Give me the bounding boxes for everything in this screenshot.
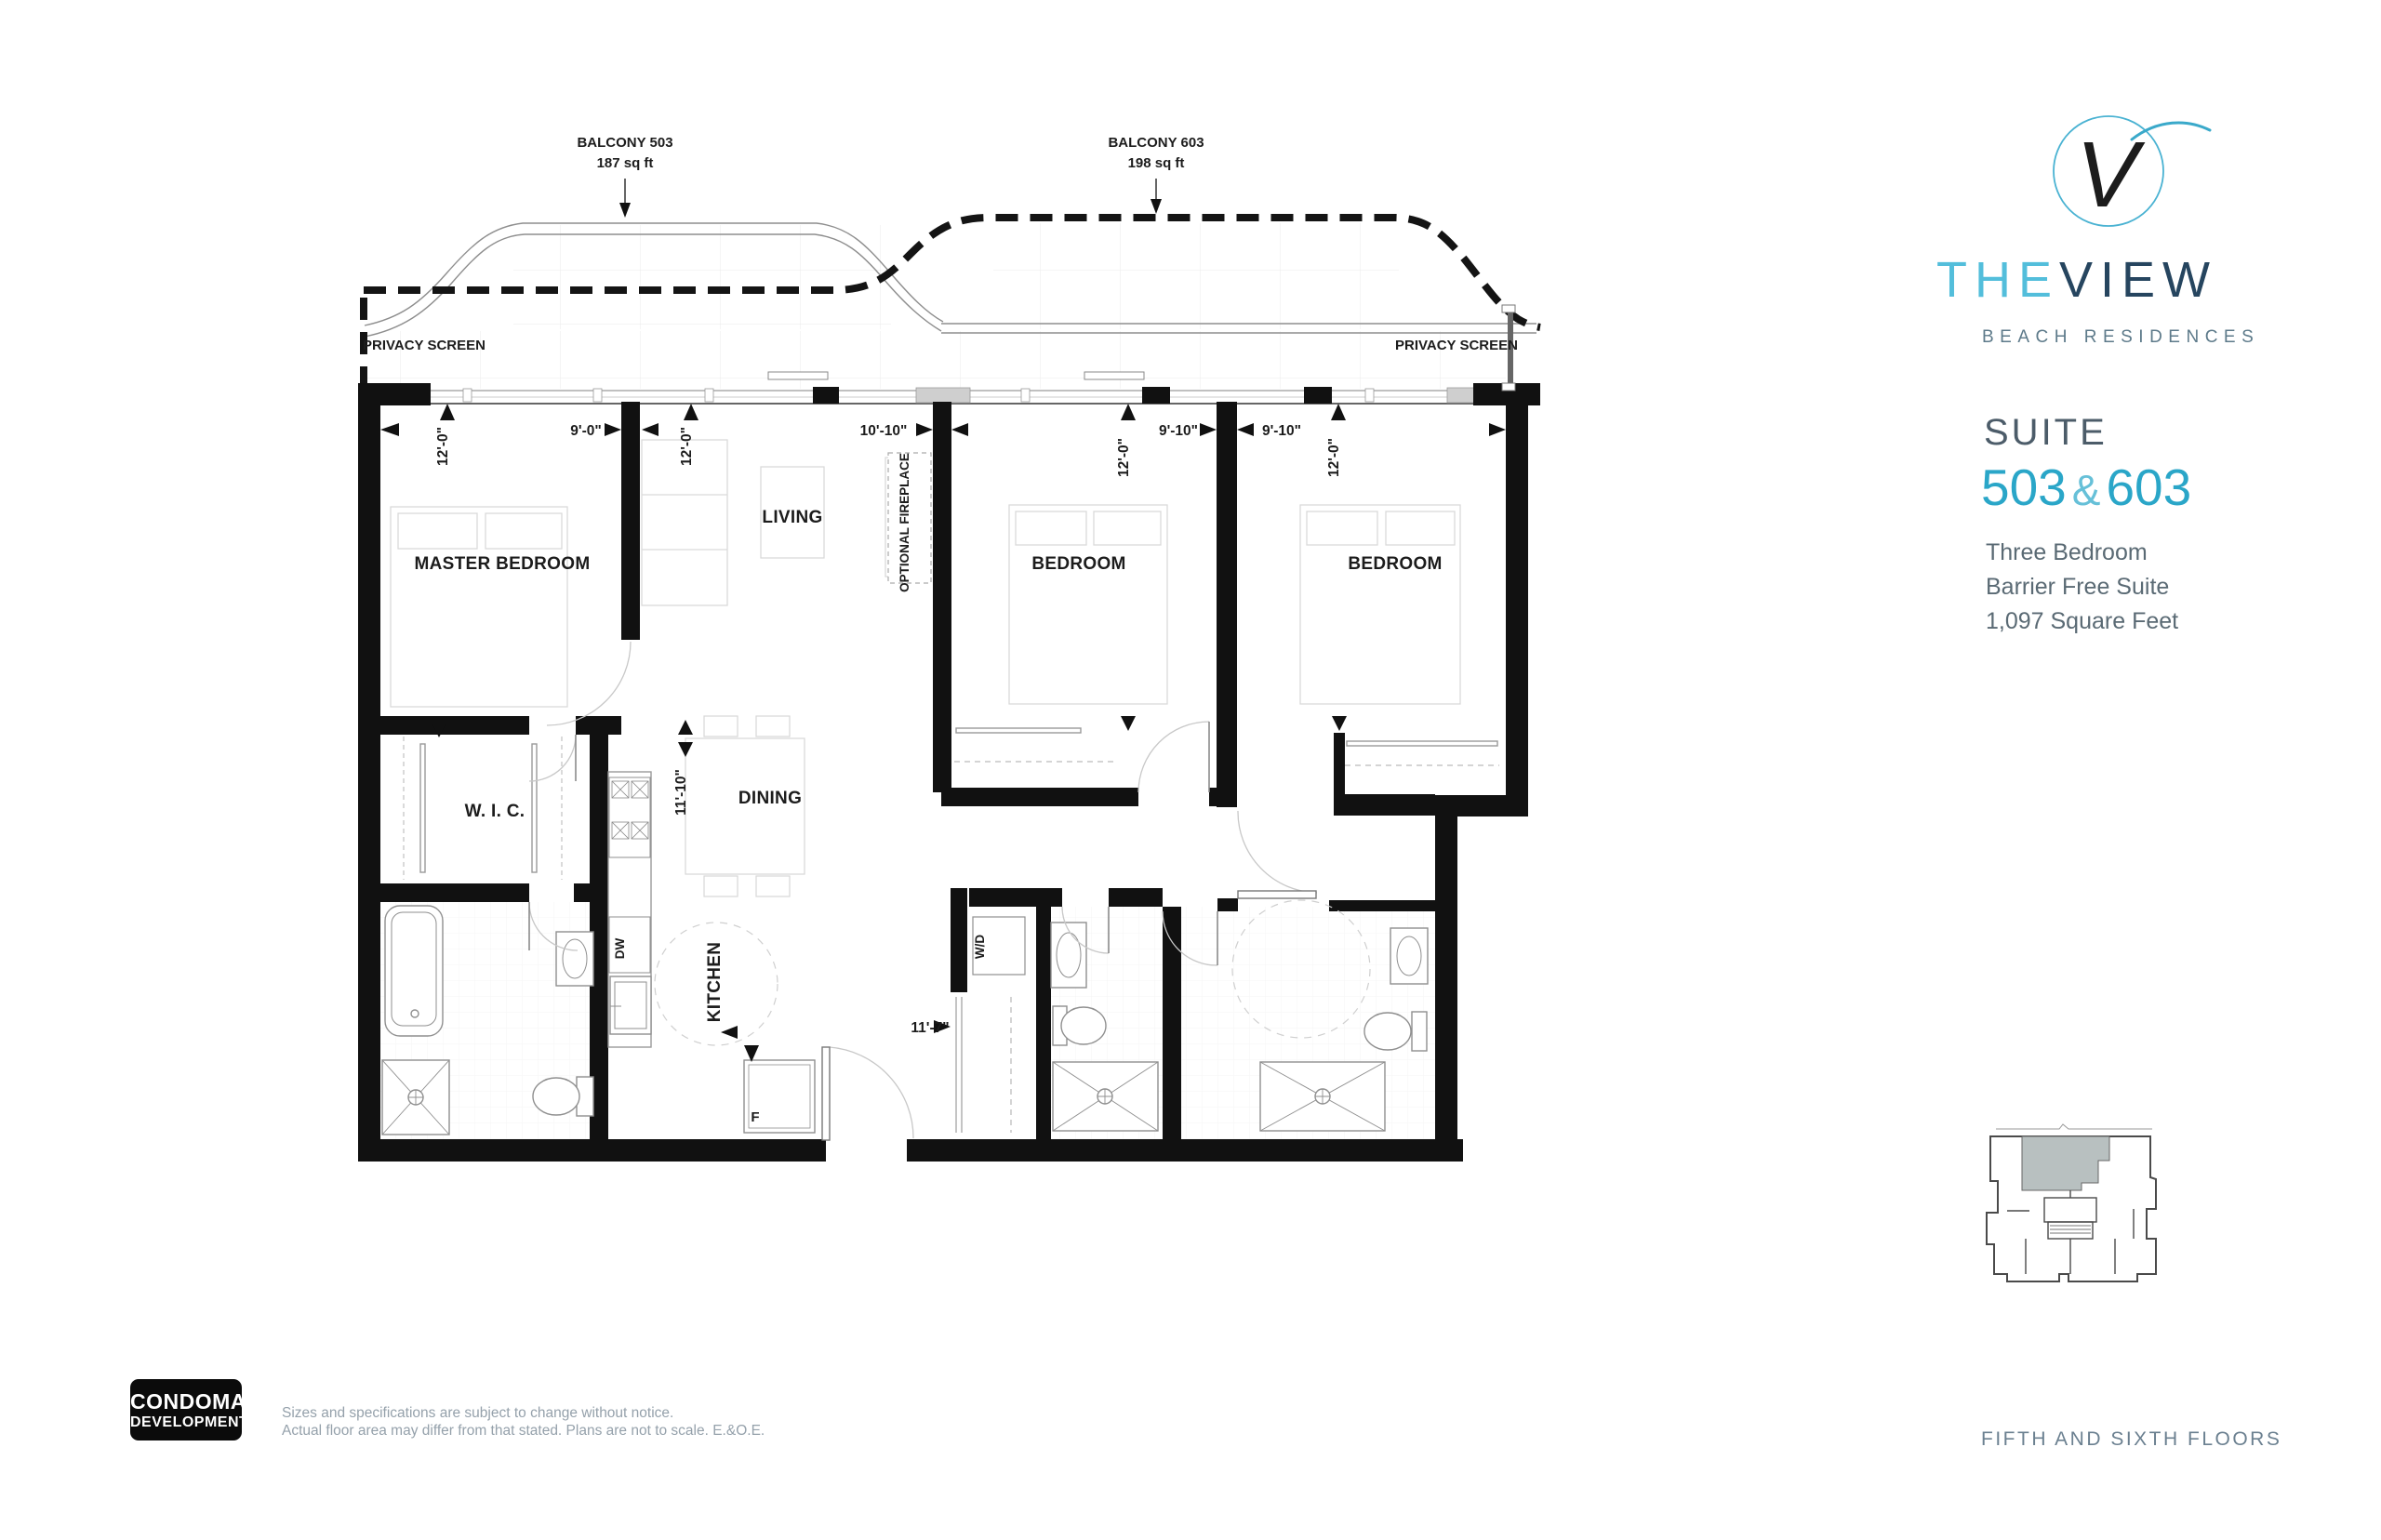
fridge-label: F	[751, 1109, 759, 1125]
balcony-603-name: BALCONY 603	[1108, 135, 1204, 151]
dim-bed-right-depth: 9'-10"	[1262, 423, 1301, 439]
dim-dining-depth: 11'-10"	[673, 769, 689, 816]
balcony-503-area: 187 sq ft	[597, 155, 654, 171]
feature-barrier-free: Barrier Free Suite	[1986, 570, 2178, 604]
room-label-bedroom-right: BEDROOM	[1348, 554, 1442, 574]
shower-3	[1260, 1062, 1385, 1131]
room-label-master: MASTER BEDROOM	[415, 554, 591, 574]
toilet-2	[1053, 1006, 1106, 1045]
entry-door-leaf	[822, 1047, 830, 1140]
suite-heading: SUITE	[1984, 412, 2108, 454]
developer-name: CONDOMAN	[130, 1389, 242, 1414]
brand-name: THEVIEW	[1936, 251, 2217, 309]
room-label-dining: DINING	[738, 789, 802, 808]
room-label-bedroom-mid: BEDROOM	[1031, 554, 1125, 574]
privacy-screen-right-label: PRIVACY SCREEN	[1395, 338, 1518, 353]
disclaimer-line-2: Actual floor area may differ from that s…	[282, 1422, 765, 1440]
sliding-door-1	[768, 372, 828, 379]
shower-1	[382, 1060, 449, 1135]
optional-fireplace-label: OPTIONAL FIREPLACE	[898, 453, 911, 592]
suite-number-right: 603	[2106, 458, 2191, 516]
building-keyplan	[1970, 1109, 2175, 1304]
suite-number-left: 503	[1981, 458, 2067, 516]
suite-features: Three Bedroom Barrier Free Suite 1,097 S…	[1986, 536, 2178, 639]
room-label-kitchen: KITCHEN	[705, 942, 725, 1023]
room-label-wic: W. I. C.	[465, 802, 525, 821]
suite-ampersand: &	[2067, 466, 2107, 514]
bedroom-right-door-leaf	[1238, 891, 1316, 898]
dim-living-width: 12'-0"	[679, 427, 695, 466]
balcony-603-area: 198 sq ft	[1128, 155, 1185, 171]
disclaimer: Sizes and specifications are subject to …	[282, 1404, 765, 1440]
dim-bed-mid-width: 12'-0"	[1116, 438, 1132, 477]
sliding-door-2	[1084, 372, 1144, 379]
dim-master-depth: 9'-0"	[570, 423, 601, 439]
dim-living-depth: 10'-10"	[860, 423, 908, 439]
floorplan-sheet: { "branding": { "monogram": "V", "the": …	[0, 0, 2381, 1540]
room-label-living: LIVING	[762, 508, 822, 527]
balcony-labels: BALCONY 503 187 sq ft BALCONY 603 198 sq…	[577, 135, 1204, 218]
feature-area: 1,097 Square Feet	[1986, 604, 2178, 639]
sink-3	[1390, 928, 1428, 984]
shower-2	[1053, 1062, 1158, 1131]
dim-bed-mid-depth: 9'-10"	[1159, 423, 1198, 439]
sink-1	[556, 932, 593, 986]
washer-dryer-label: W/D	[973, 935, 987, 959]
toilet-1	[533, 1077, 593, 1116]
balcony-503-name: BALCONY 503	[577, 135, 672, 151]
brand-view: VIEW	[2059, 252, 2217, 308]
toilet-3	[1364, 1012, 1427, 1051]
dim-master-width: 12'-0"	[435, 427, 451, 466]
disclaimer-line-1: Sizes and specifications are subject to …	[282, 1404, 765, 1422]
dim-hall-width: 11'-7"	[911, 1020, 949, 1036]
developer-logo: CONDOMAN DEVELOPMENTS	[130, 1379, 242, 1440]
developer-type: DEVELOPMENTS	[130, 1414, 242, 1431]
brand-logo-monogram: V	[2028, 104, 2223, 246]
floor-plan-drawing: 12'-0" 9'-0" 12'-0" 10'-10" 12'-0" 9'-10…	[0, 0, 2381, 1540]
dim-bed-right-width: 12'-0"	[1326, 438, 1342, 477]
suite-numbers: 503&603	[1981, 458, 2191, 517]
sink-2	[1051, 923, 1086, 988]
brand-tagline: BEACH RESIDENCES	[1982, 327, 2259, 348]
kitchen-counter	[608, 772, 651, 1047]
kitchen-sink	[610, 976, 651, 1034]
foyer-closet	[956, 997, 1011, 1133]
brand-the: THE	[1936, 252, 2059, 308]
balcony-floor	[366, 223, 1506, 389]
keyplan-highlighted-suite	[2022, 1136, 2109, 1190]
feature-bedrooms: Three Bedroom	[1986, 536, 2178, 570]
dishwasher-label: DW	[613, 938, 627, 960]
privacy-screen-left-label: PRIVACY SCREEN	[363, 338, 486, 353]
floors-note: FIFTH AND SIXTH FLOORS	[1981, 1428, 2281, 1451]
